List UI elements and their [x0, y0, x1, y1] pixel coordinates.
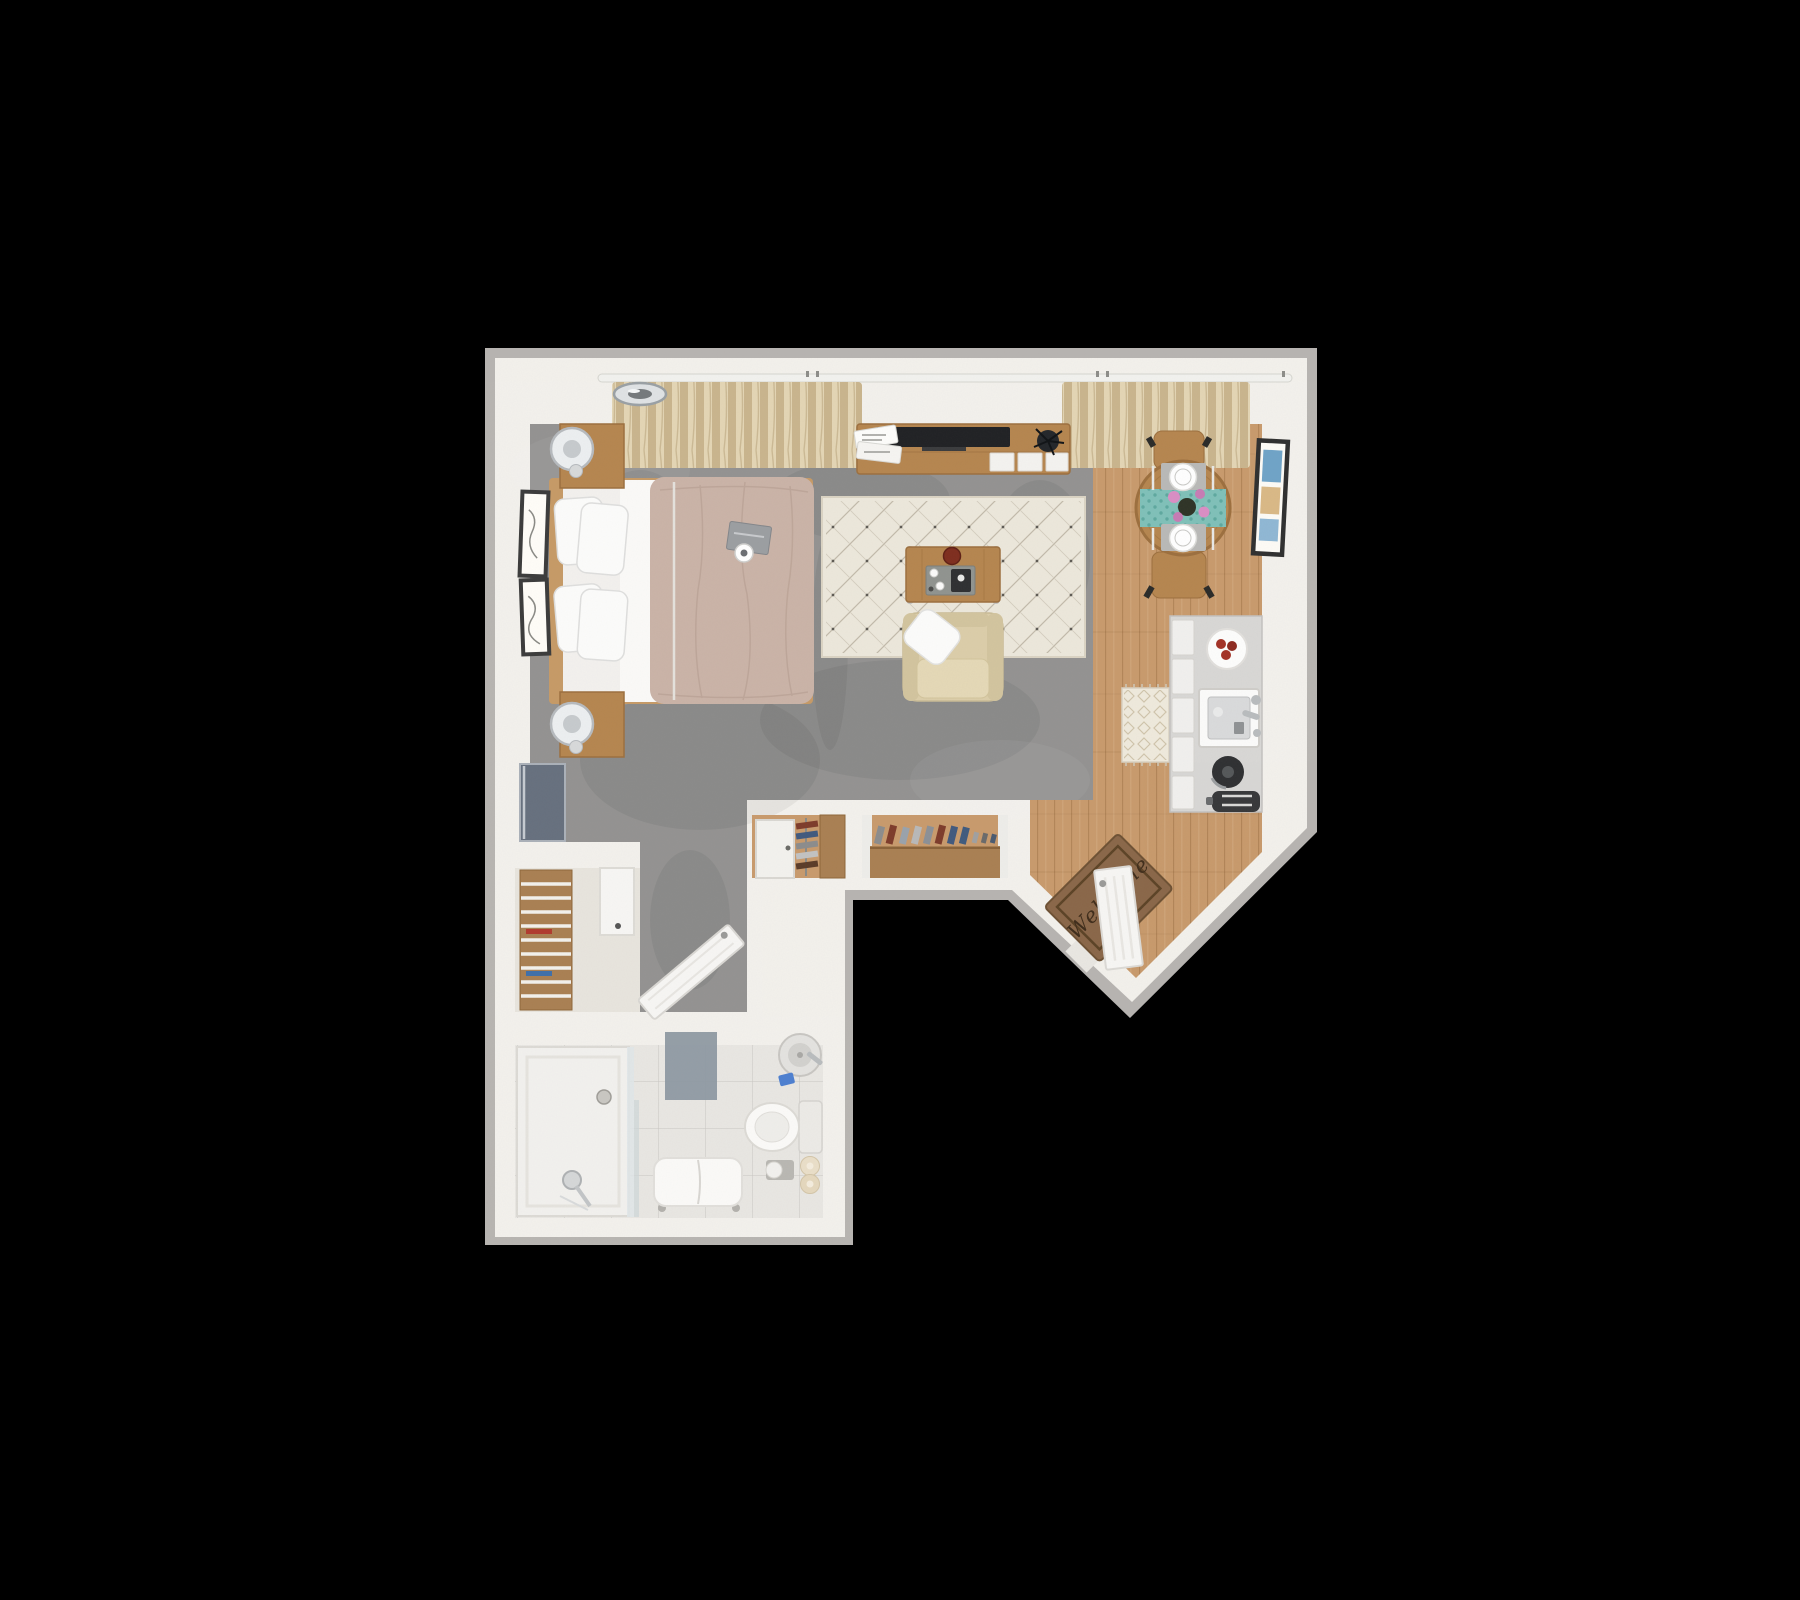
bath-mat [665, 1032, 717, 1100]
toilet-paper-holder [766, 1160, 794, 1180]
shower-bench [654, 1158, 742, 1212]
walk-in-shower [517, 1047, 639, 1217]
dining-chair-south [1143, 552, 1214, 599]
ceiling-light [614, 383, 666, 405]
wardrobe-group [756, 815, 845, 878]
decor-bowl [944, 548, 961, 565]
wall-art-frame-1 [520, 492, 549, 577]
toilet [745, 1101, 822, 1153]
seat-cushion [917, 659, 989, 698]
console-drawers [990, 453, 1068, 471]
cabinet-fronts [1172, 620, 1194, 809]
leaning-tv-panel [520, 764, 565, 841]
place-setting-south [1153, 524, 1213, 552]
wall-art-frame-2 [521, 580, 550, 655]
toaster [1206, 791, 1260, 812]
shower-glass [627, 1047, 634, 1217]
framed-art-east [1253, 440, 1288, 554]
bed-group [549, 477, 814, 704]
tv-console-group [854, 424, 1070, 474]
tv-stand-bar [922, 447, 966, 451]
kettle [1212, 756, 1244, 788]
floor-plan-canvas: Welcome [0, 0, 1800, 1600]
shoe-shelf [870, 846, 1000, 878]
floor-plan-stage: Welcome [0, 0, 1800, 1600]
curtain-rod [598, 374, 1292, 382]
wardrobe-side-panel [820, 815, 845, 878]
kitchen-sink [1199, 689, 1261, 747]
fruit-plate [1207, 629, 1247, 669]
armchair [900, 606, 1003, 701]
shower-drain [597, 1090, 611, 1104]
coffee-table [906, 546, 1000, 604]
place-setting-north [1153, 463, 1213, 491]
